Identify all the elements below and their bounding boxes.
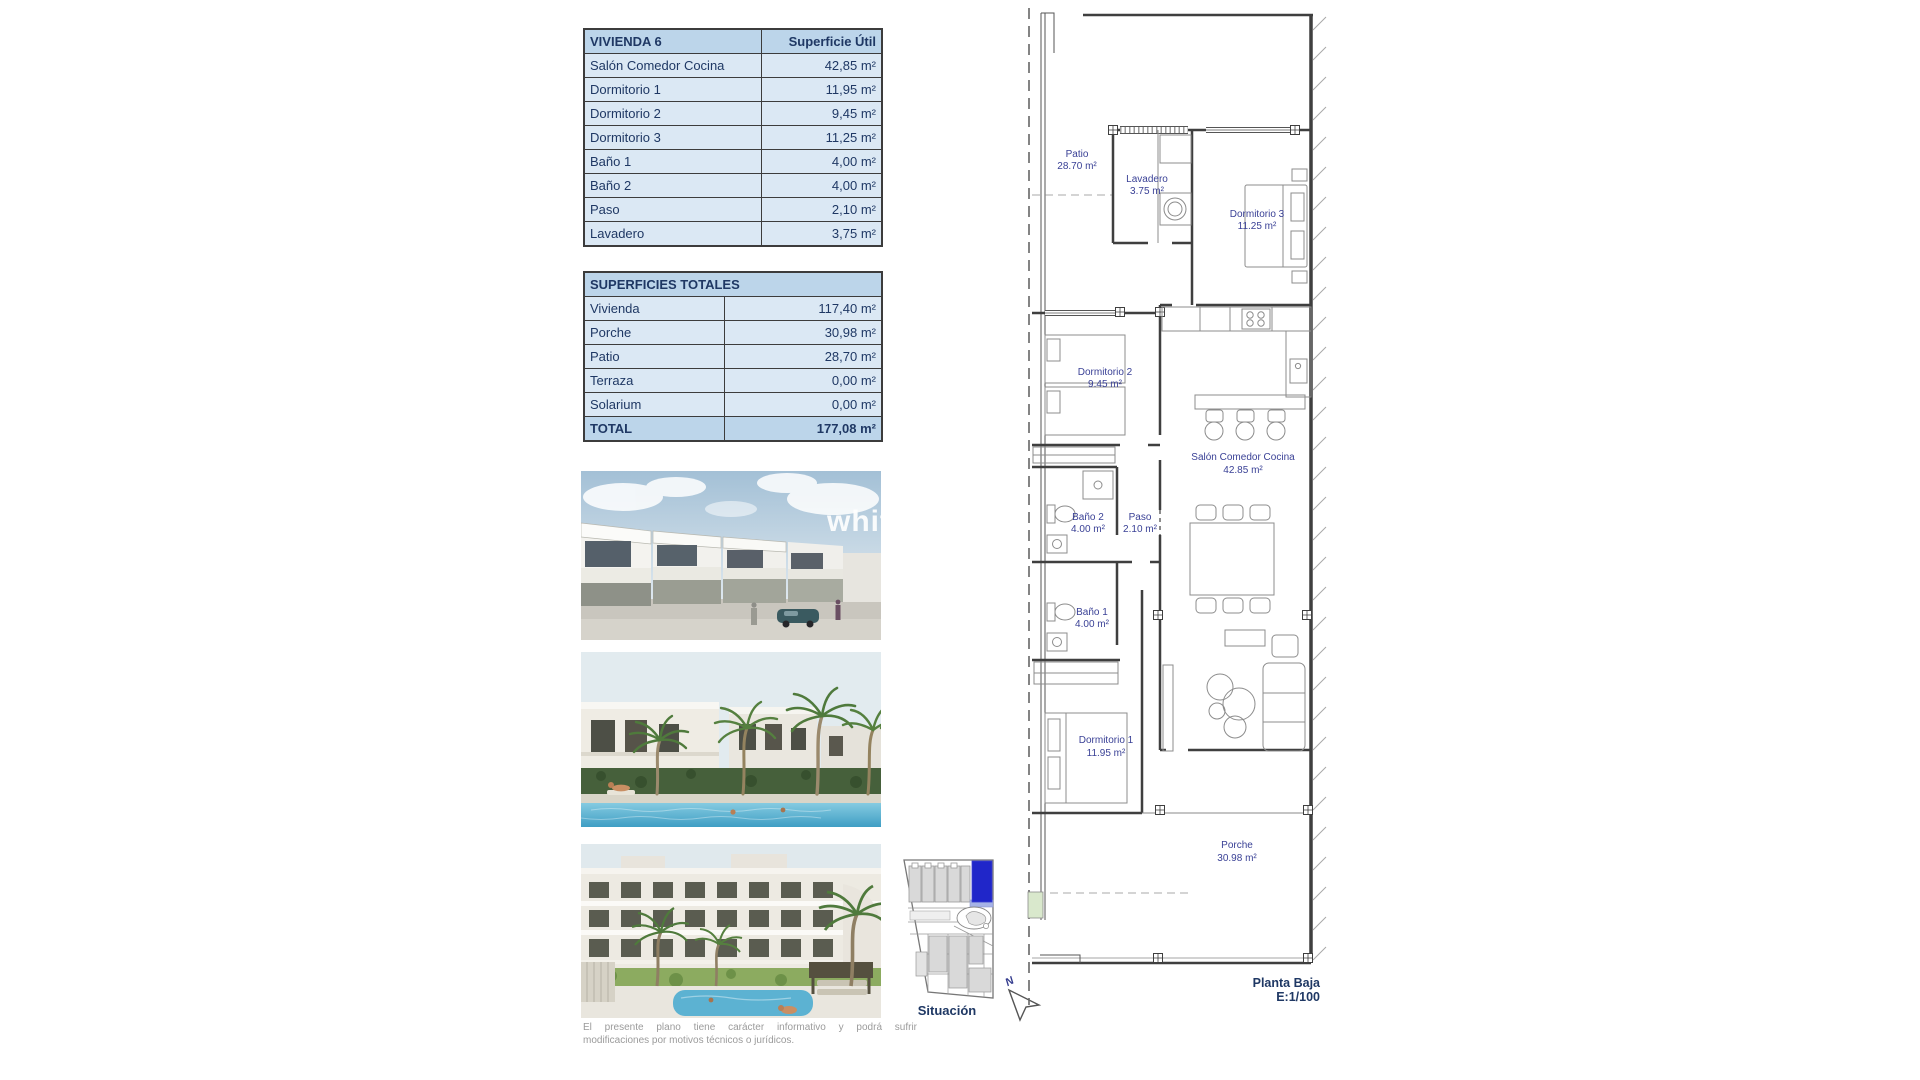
column-markers xyxy=(1109,126,1313,963)
disclaimer-line-2: modificaciones por motivos técnicos o ju… xyxy=(583,1034,917,1047)
watermark-text: white xyxy=(826,505,881,538)
row-value: 28,70 m² xyxy=(724,345,882,369)
row-label: Salón Comedor Cocina xyxy=(584,54,762,78)
party-wall-hatching xyxy=(1313,17,1326,960)
room-area: 30.98 m² xyxy=(1217,853,1257,864)
row-label: Dormitorio 3 xyxy=(584,126,762,150)
row-label: Vivienda xyxy=(584,297,724,321)
row-value: 0,00 m² xyxy=(724,369,882,393)
room-labels: Patio 28.70 m² Lavadero 3.75 m² Dormitor… xyxy=(1057,149,1295,864)
room-area: 4.00 m² xyxy=(1075,619,1110,630)
disclaimer-text: El presente plano tiene carácter informa… xyxy=(583,1021,917,1047)
row-value: 2,10 m² xyxy=(762,198,882,222)
row-value: 9,45 m² xyxy=(762,102,882,126)
north-letter: N xyxy=(1003,974,1017,989)
room-area: 3.75 m² xyxy=(1130,186,1165,197)
interior-walls xyxy=(1032,130,1311,813)
table-row: Dormitorio 311,25 m² xyxy=(584,126,882,150)
vivienda-areas-table: VIVIENDA 6 Superficie Útil Salón Comedor… xyxy=(583,28,883,247)
room-label: Baño 2 xyxy=(1072,512,1104,523)
floor-plan-drawing: Patio 28.70 m² Lavadero 3.75 m² Dormitor… xyxy=(1020,5,1332,1010)
row-value: 42,85 m² xyxy=(762,54,882,78)
room-label: Dormitorio 1 xyxy=(1079,735,1134,746)
table-row: Porche30,98 m² xyxy=(584,321,882,345)
dining-set xyxy=(1190,505,1274,613)
table-total-row: TOTAL177,08 m² xyxy=(584,417,882,442)
row-label: Porche xyxy=(584,321,724,345)
room-area: 2.10 m² xyxy=(1123,524,1158,535)
room-label: Salón Comedor Cocina xyxy=(1191,452,1295,463)
apartment-building xyxy=(581,854,881,970)
table-header-row: VIVIENDA 6 Superficie Útil xyxy=(584,29,882,54)
bano1-fixtures xyxy=(1047,603,1075,651)
row-label: Paso xyxy=(584,198,762,222)
row-value: 117,40 m² xyxy=(724,297,882,321)
room-label: Paso xyxy=(1129,512,1152,523)
row-value: 4,00 m² xyxy=(762,174,882,198)
row-label: Lavadero xyxy=(584,222,762,247)
row-value: 30,98 m² xyxy=(724,321,882,345)
plan-title: Planta Baja xyxy=(1225,976,1320,990)
table-title: VIVIENDA 6 xyxy=(584,29,762,54)
parking-strip xyxy=(910,911,950,920)
table-row: Dormitorio 111,95 m² xyxy=(584,78,882,102)
row-label: Patio xyxy=(584,345,724,369)
table-row: Solarium0,00 m² xyxy=(584,393,882,417)
table-row: Vivienda117,40 m² xyxy=(584,297,882,321)
row-label: Terraza xyxy=(584,369,724,393)
sitemap-label: Situación xyxy=(886,1003,1008,1018)
totals-table: SUPERFICIES TOTALES Vivienda117,40 m² Po… xyxy=(583,271,883,442)
table-row: Baño 14,00 m² xyxy=(584,150,882,174)
townhouse-parcels xyxy=(909,863,970,902)
table-row: Salón Comedor Cocina42,85 m² xyxy=(584,54,882,78)
room-area: 28.70 m² xyxy=(1057,161,1097,172)
dormitorio1-furniture xyxy=(1034,662,1127,803)
render-photo-complex xyxy=(581,844,881,1018)
breakfast-bar xyxy=(1195,395,1305,440)
plan-sheet: VIVIENDA 6 Superficie Útil Salón Comedor… xyxy=(0,0,1920,1080)
table-row: Terraza0,00 m² xyxy=(584,369,882,393)
table-row: Patio28,70 m² xyxy=(584,345,882,369)
pool-water xyxy=(581,803,881,827)
living-room-furniture xyxy=(1163,630,1305,751)
row-value: 11,95 m² xyxy=(762,78,882,102)
table-row: Baño 24,00 m² xyxy=(584,174,882,198)
render-photo-pool xyxy=(581,652,881,827)
disclaimer-line-1: El presente plano tiene carácter informa… xyxy=(583,1021,917,1034)
room-label: Dormitorio 3 xyxy=(1230,209,1285,220)
highlighted-unit xyxy=(972,861,992,902)
pool-deck xyxy=(581,794,881,803)
room-label: Lavadero xyxy=(1126,174,1168,185)
room-area: 11.25 m² xyxy=(1238,221,1277,232)
row-label: Baño 1 xyxy=(584,150,762,174)
row-label: Dormitorio 2 xyxy=(584,102,762,126)
room-label: Patio xyxy=(1066,149,1089,160)
room-label: Dormitorio 2 xyxy=(1078,367,1133,378)
entry-marker xyxy=(1028,892,1043,918)
room-area: 9.45 m² xyxy=(1088,379,1123,390)
fence xyxy=(581,962,615,1002)
row-value: 3,75 m² xyxy=(762,222,882,247)
site-location-map xyxy=(896,856,998,1002)
row-value: 0,00 m² xyxy=(724,393,882,417)
room-area: 42.85 m² xyxy=(1223,465,1263,476)
table-header-row: SUPERFICIES TOTALES xyxy=(584,272,882,297)
table-header-right: Superficie Útil xyxy=(762,29,882,54)
room-area: 11.95 m² xyxy=(1087,748,1126,759)
table-row: Dormitorio 29,45 m² xyxy=(584,102,882,126)
room-area: 4.00 m² xyxy=(1071,524,1106,535)
room-label: Baño 1 xyxy=(1076,607,1108,618)
total-value: 177,08 m² xyxy=(724,417,882,442)
row-label: Solarium xyxy=(584,393,724,417)
plan-title-block: Planta Baja E:1/100 xyxy=(1225,976,1320,1004)
room-label: Porche xyxy=(1221,840,1253,851)
table-title: SUPERFICIES TOTALES xyxy=(584,272,882,297)
row-value: 11,25 m² xyxy=(762,126,882,150)
row-label: Baño 2 xyxy=(584,174,762,198)
table-row: Lavadero3,75 m² xyxy=(584,222,882,247)
render-photo-street: white xyxy=(581,471,881,640)
kitchen-fixtures xyxy=(1162,307,1311,397)
table-row: Paso2,10 m² xyxy=(584,198,882,222)
row-value: 4,00 m² xyxy=(762,150,882,174)
plan-scale: E:1/100 xyxy=(1225,990,1320,1004)
pool-area xyxy=(957,907,991,929)
row-label: Dormitorio 1 xyxy=(584,78,762,102)
road xyxy=(581,619,881,640)
total-label: TOTAL xyxy=(584,417,724,442)
